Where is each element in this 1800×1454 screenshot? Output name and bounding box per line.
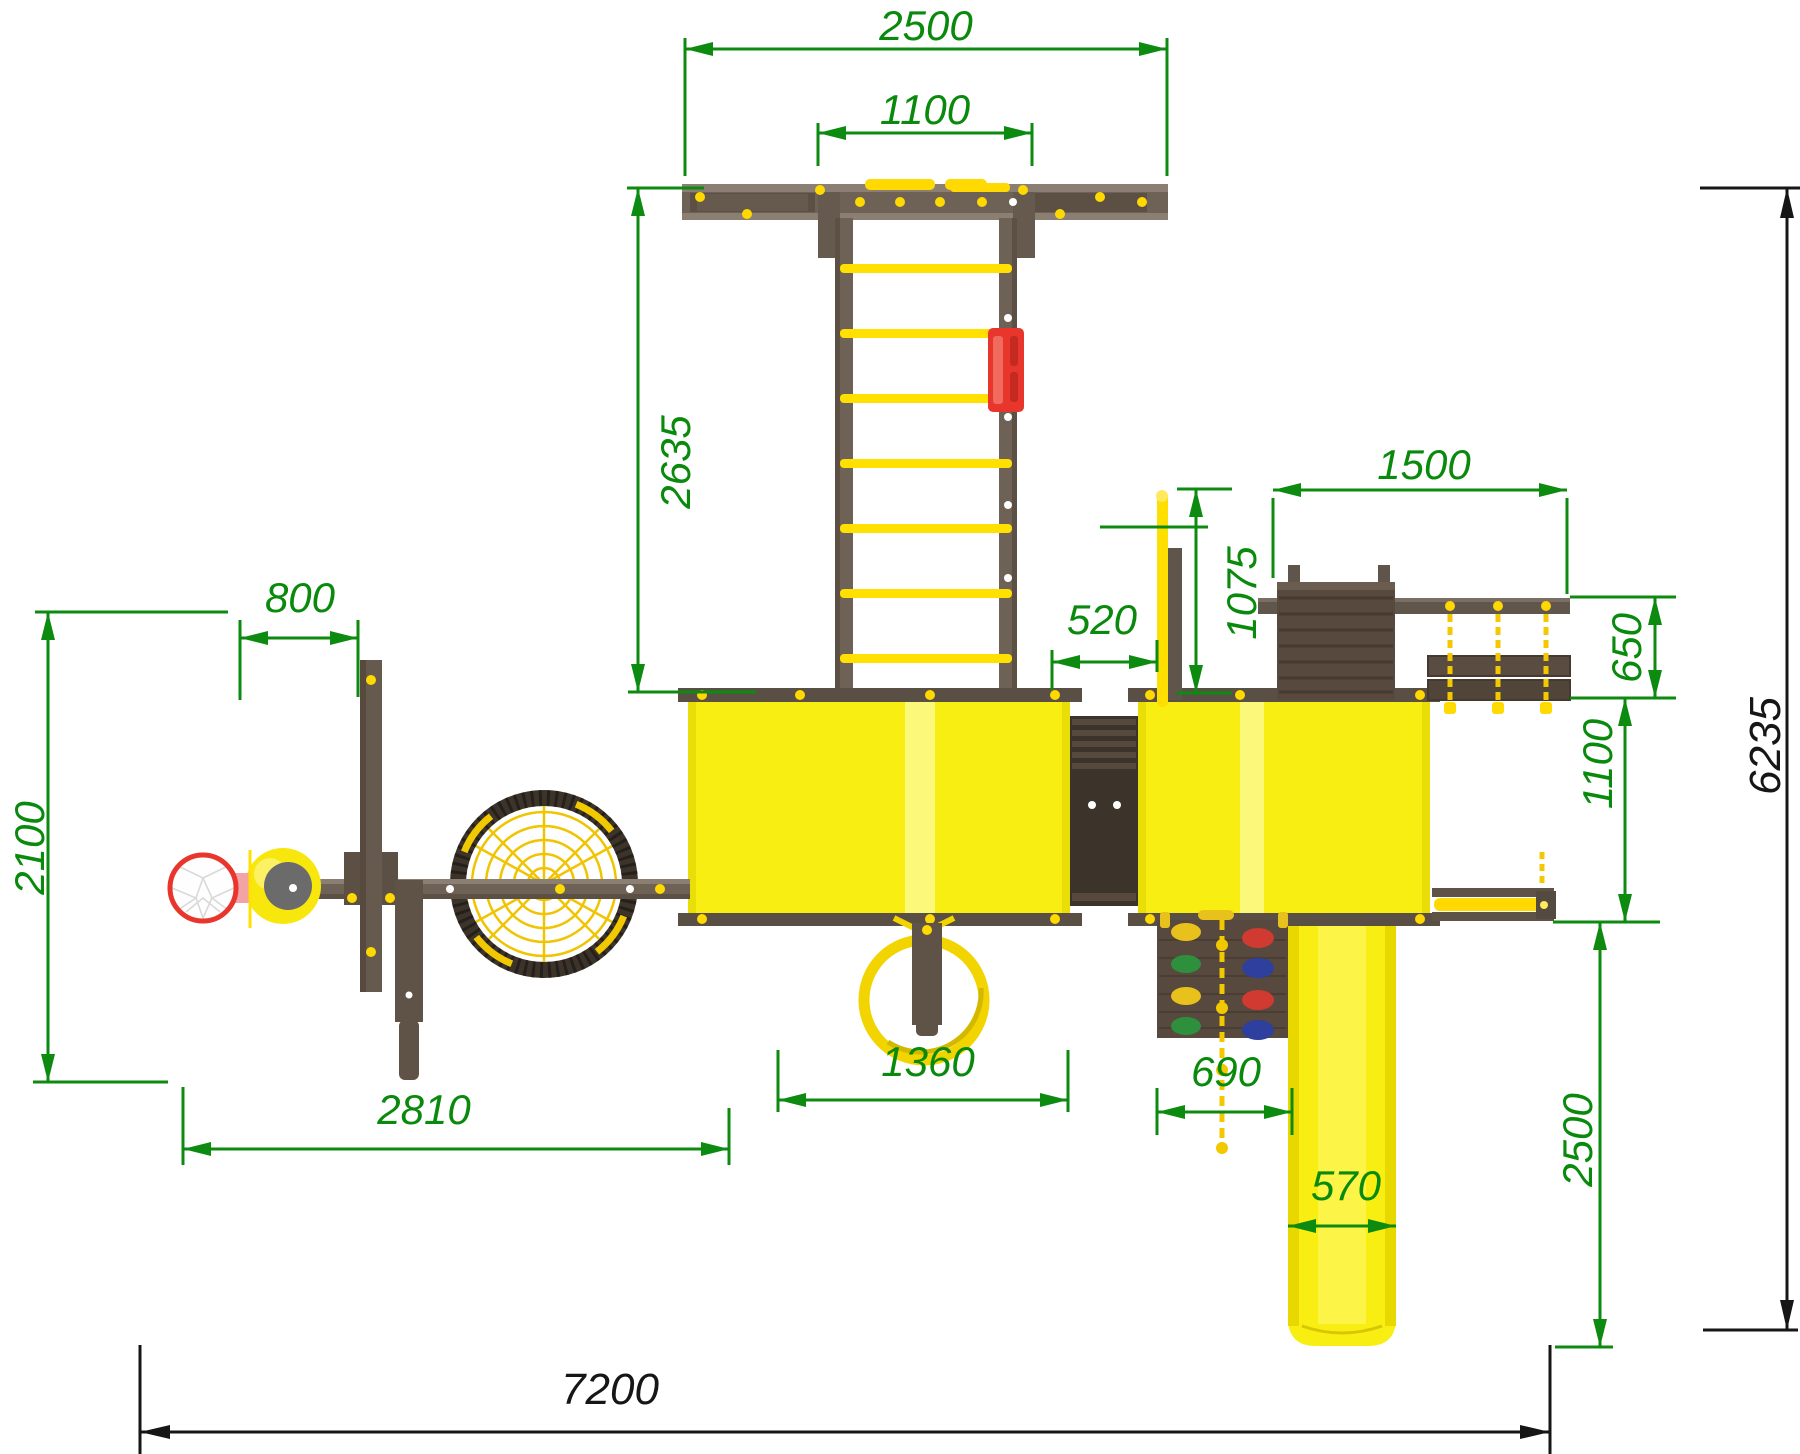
tower-1-roof: [678, 688, 1082, 926]
dimension-1100-top: 1100: [818, 86, 1032, 166]
dimension-2500-right: 2500: [1554, 922, 1613, 1347]
monkey-bars-beam: [682, 179, 1168, 258]
dim-label: 2500: [1554, 1093, 1601, 1188]
balance-rail: [1432, 852, 1556, 921]
dim-label: 690: [1191, 1048, 1262, 1095]
tower-2-roof: [1128, 688, 1440, 926]
dim-label: 7200: [561, 1365, 659, 1414]
slide: [1288, 926, 1396, 1346]
dimension-1100-right: 1100: [1553, 698, 1660, 922]
swing-seats: [1428, 601, 1570, 714]
dimension-7200: 7200: [140, 1345, 1550, 1454]
dim-label: 1360: [881, 1038, 975, 1085]
red-climb-pad: [988, 328, 1024, 412]
climbing-ramp: [1277, 565, 1395, 700]
basketball-module: [170, 848, 321, 928]
bridge: [1070, 716, 1138, 906]
dimension-6235: 6235: [1700, 188, 1800, 1330]
cross-post: [344, 660, 398, 992]
dim-label: 2810: [376, 1086, 471, 1133]
playground-plan-drawing: 2500 1100 2635 1500 1075: [0, 0, 1800, 1454]
grab-handle: [865, 179, 935, 190]
dim-label: 1100: [1574, 718, 1621, 809]
dimension-1360: 1360: [778, 1038, 1068, 1112]
dim-label: 1075: [1218, 546, 1265, 640]
dim-label: 650: [1603, 612, 1650, 683]
dim-label: 1100: [880, 86, 971, 133]
dimension-2100: 2100: [6, 612, 228, 1082]
dimension-1500: 1500: [1273, 441, 1567, 594]
dimension-520: 520: [1052, 596, 1157, 690]
ladder-rungs: [840, 264, 1012, 663]
dimension-2635: 2635: [627, 188, 756, 692]
dim-label: 800: [265, 574, 336, 621]
dimension-650: 650: [1570, 597, 1676, 698]
dim-label: 6235: [1741, 697, 1790, 795]
dim-label: 1500: [1377, 441, 1471, 488]
dimension-2810: 2810: [183, 1086, 729, 1165]
fireman-pole: [1156, 490, 1182, 707]
dim-label: 2635: [652, 415, 699, 510]
dim-label: 2500: [878, 2, 973, 49]
dim-label: 2100: [6, 801, 53, 896]
swedish-ladder: [835, 218, 1024, 700]
dim-label: 570: [1311, 1162, 1382, 1209]
dim-label: 520: [1067, 596, 1138, 643]
hoop: [170, 855, 236, 921]
hanging-plank: [395, 880, 423, 1080]
mount-disc: [264, 862, 312, 910]
plan-svg: 2500 1100 2635 1500 1075: [0, 0, 1800, 1454]
dimension-800: 800: [240, 574, 358, 700]
